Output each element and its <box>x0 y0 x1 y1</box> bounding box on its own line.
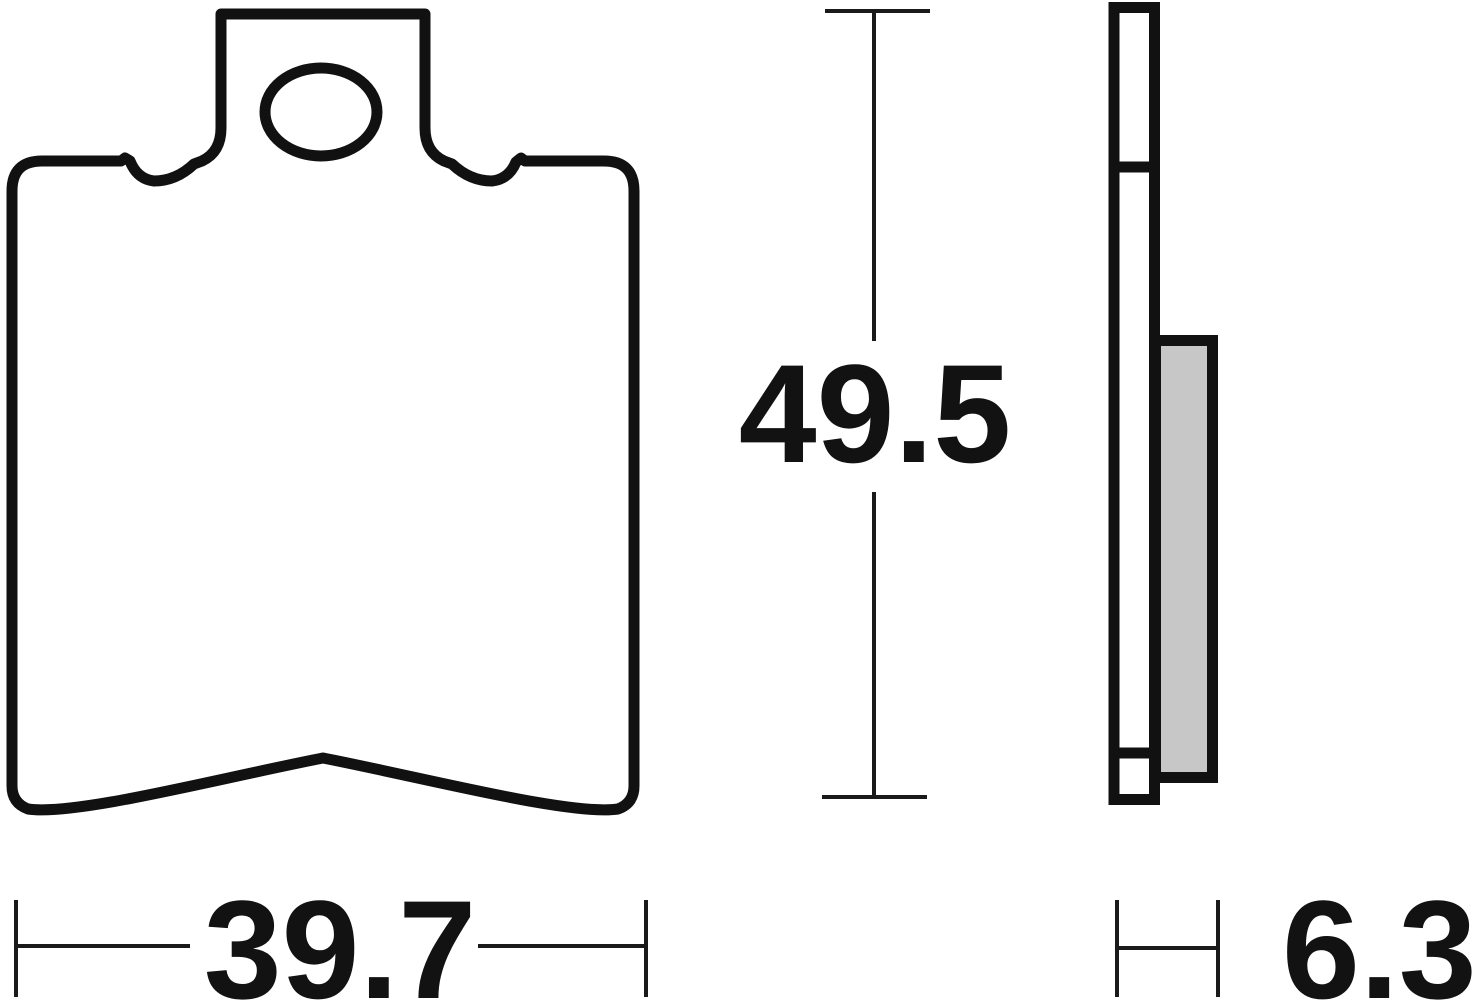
height-dimension: 49.5 <box>739 11 1011 797</box>
brake-pad-drawing: 49.5 39.7 6.3 <box>0 0 1477 1000</box>
thickness-dimension-label: 6.3 <box>1282 871 1477 1000</box>
side-view <box>1109 8 1213 800</box>
drawing-canvas: 49.5 39.7 6.3 <box>0 0 1477 1000</box>
friction-material-side <box>1156 341 1213 778</box>
backing-plate-side <box>1114 8 1155 800</box>
height-dimension-label: 49.5 <box>739 335 1011 492</box>
thickness-dimension: 6.3 <box>1117 871 1477 1000</box>
width-dimension-label: 39.7 <box>204 871 476 1000</box>
front-view <box>12 14 634 810</box>
mounting-hole <box>265 68 377 156</box>
width-dimension: 39.7 <box>16 871 646 1000</box>
